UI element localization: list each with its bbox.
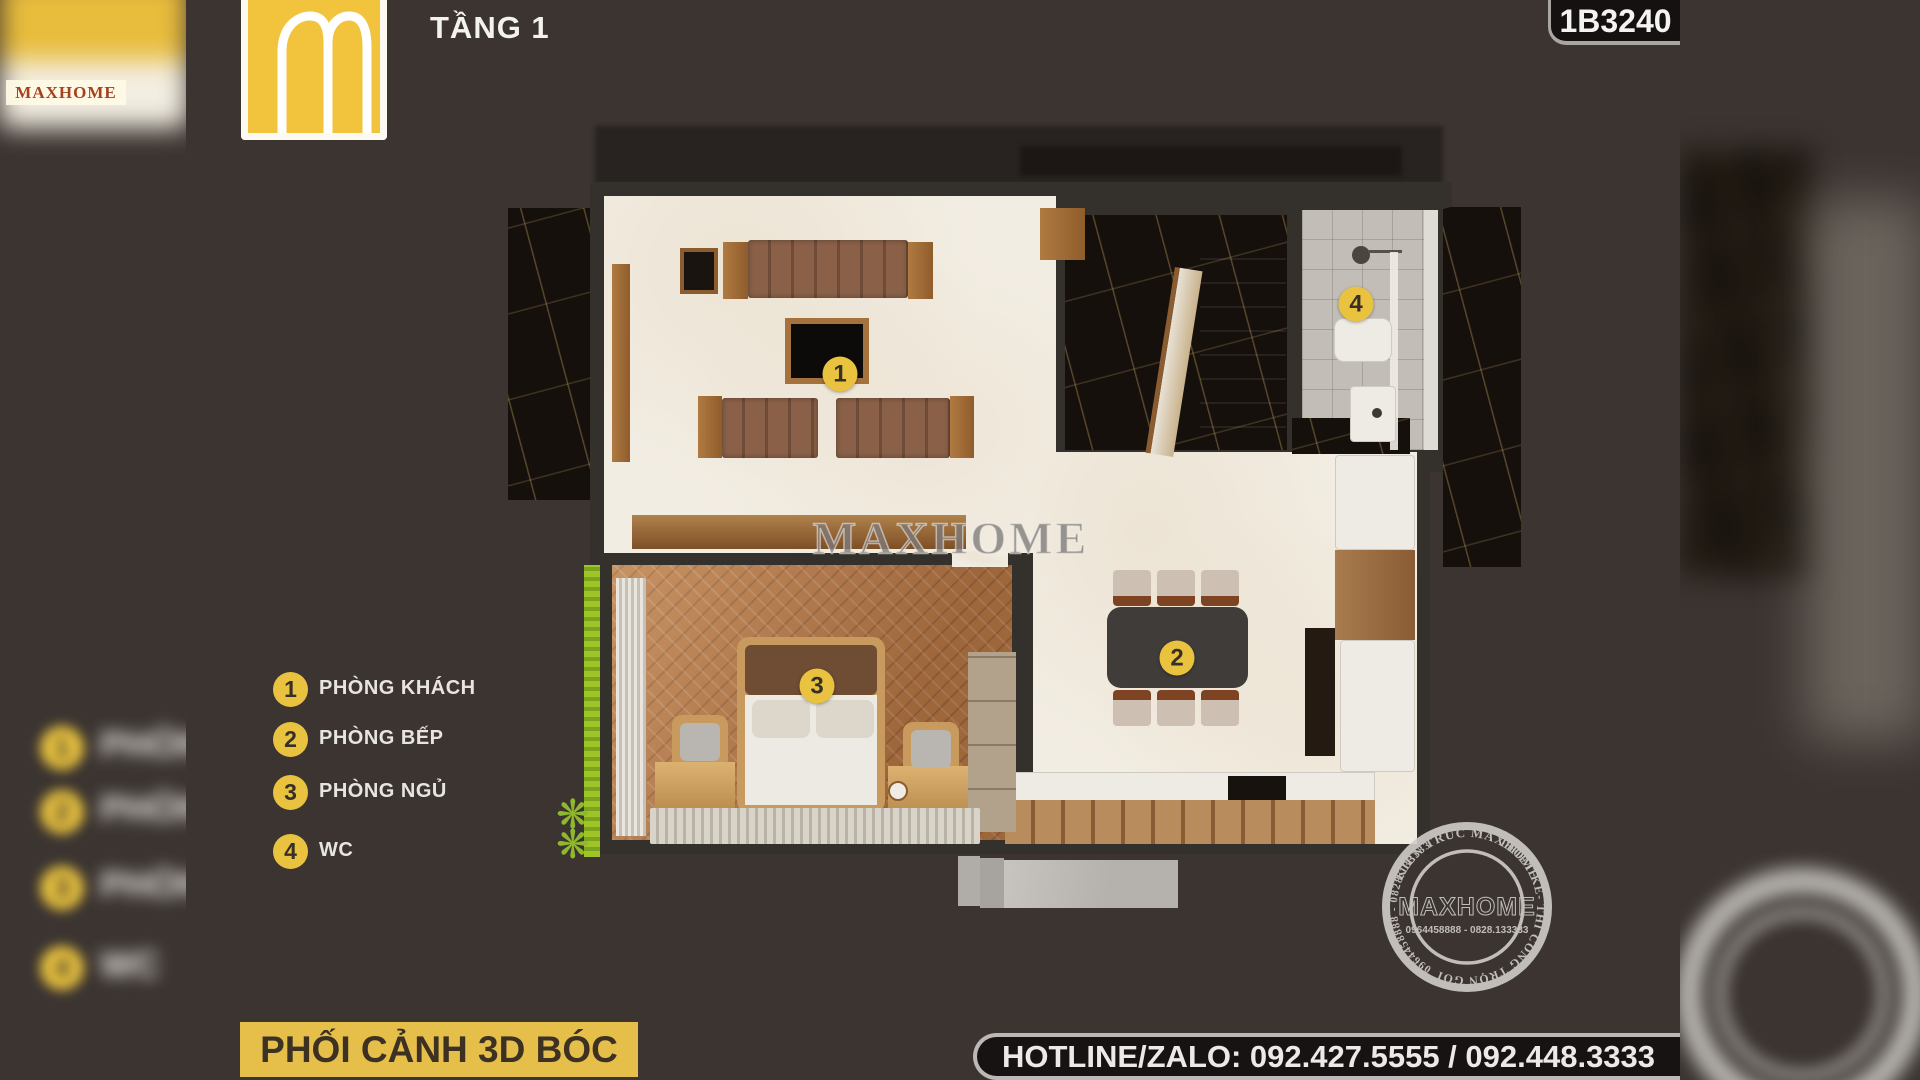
watermark: MAXHOME <box>813 512 1090 565</box>
ghost-legend-badge: 3 <box>40 866 84 910</box>
wc-right-wall <box>1424 210 1438 450</box>
ghost-legend-item-2: 2PHÒNG BẾP <box>40 790 190 836</box>
pillow <box>752 700 810 738</box>
dining-chair <box>1201 690 1239 726</box>
tall-cabinet <box>1305 628 1335 756</box>
legend-item-2: 2PHÒNG BẾP <box>273 722 523 758</box>
wall-clock-box <box>680 248 718 294</box>
ghost-legend: 1PHÒNG KHÁCH2PHÒNG BẾP3PHÒNG NGỦ4WC <box>0 0 190 1080</box>
dining-chair <box>1201 570 1239 606</box>
bedroom-rug <box>650 808 980 844</box>
table-clock-icon <box>888 781 908 801</box>
kitchen-base-cabinets <box>1005 800 1375 844</box>
maxhome-logo <box>241 0 387 140</box>
roof-cut-shadow-dark <box>1020 146 1402 176</box>
sofa-arm <box>950 396 974 458</box>
ghost-legend-label: PHÒNG NGỦ <box>100 864 190 906</box>
nightstand-left <box>655 762 735 812</box>
stool-seat <box>911 730 951 768</box>
dining-chair <box>1113 570 1151 606</box>
dining-chair <box>1157 690 1195 726</box>
room-marker-wc: 4 <box>1339 287 1374 322</box>
ghost-legend-item-3: 3PHÒNG NGỦ <box>40 866 190 912</box>
dining-chair <box>1157 570 1195 606</box>
sofa-bottom-left <box>722 398 818 458</box>
room-marker-phong-bep: 2 <box>1160 641 1195 676</box>
sofa-arm <box>908 242 933 299</box>
toilet-drain-icon <box>1372 408 1382 418</box>
kitchen-side-counter <box>1340 640 1415 772</box>
stair-cabinet <box>1040 208 1085 260</box>
ghost-marble-panel <box>1680 148 1812 578</box>
entry-door <box>612 264 630 462</box>
ghost-legend-badge: 1 <box>40 726 84 770</box>
logo-m-icon <box>248 0 387 140</box>
design-code-badge: 1B3240 <box>1548 0 1680 45</box>
legend-label: PHÒNG KHÁCH <box>319 677 476 700</box>
stair-steps <box>1200 250 1286 450</box>
logo-wordmark: MAXHOME <box>6 80 126 105</box>
kitchen-counter <box>1005 772 1375 802</box>
legend-item-4: 4WC <box>273 834 523 870</box>
legend-item-3: 3PHÒNG NGỦ <box>273 775 523 811</box>
legend-number-badge: 4 <box>273 834 308 869</box>
floor-title: TẦNG 1 <box>430 10 550 46</box>
stamp-center-phone: 0964458888 - 0828.133333 <box>1406 925 1529 936</box>
porch-step <box>980 858 1004 908</box>
sofa-arm <box>723 242 748 299</box>
room-marker-phong-ngu: 3 <box>800 669 835 704</box>
legend-item-1: 1PHÒNG KHÁCH <box>273 672 523 708</box>
legend-number-badge: 3 <box>273 775 308 810</box>
ghost-legend-label: PHÒNG BẾP <box>100 788 190 830</box>
room-marker-phong-khach: 1 <box>823 357 858 392</box>
cooktop <box>1228 776 1286 800</box>
grass-tuft-icon: ❋❋ <box>556 800 590 860</box>
ghost-highlight <box>1806 200 1920 740</box>
ghost-legend-label: PHÒNG KHÁCH <box>100 724 190 766</box>
ghost-legend-label: WC <box>100 944 160 986</box>
kitchen-wood-cabinet <box>1335 550 1415 640</box>
curtain <box>616 578 646 836</box>
ghost-legend-item-1: 1PHÒNG KHÁCH <box>40 726 190 772</box>
stool-seat <box>680 723 720 761</box>
hotline-banner: HOTLINE/ZALO: 092.427.5555 / 092.448.333… <box>973 1033 1680 1080</box>
ghost-legend-badge: 2 <box>40 790 84 834</box>
ghost-legend-item-4: 4WC <box>40 946 190 992</box>
poster: 1PHÒNG KHÁCH2PHÒNG BẾP3PHÒNG NGỦ4WC MAXH… <box>0 0 1920 1080</box>
caption-banner: PHỐI CẢNH 3D BÓC MÁI <box>240 1022 638 1077</box>
porch-slab <box>1004 860 1178 908</box>
maxhome-stamp: KIẾN TRÚC MAXHOME THIẾT KẾ- THI CÔNG TRỌ… <box>1381 821 1553 993</box>
bathtub <box>1334 318 1392 362</box>
porch-step <box>958 856 980 906</box>
legend-label: PHÒNG NGỦ <box>319 780 447 803</box>
marble-panel-right <box>1443 207 1521 567</box>
legend-label: WC <box>319 839 353 862</box>
dining-chair <box>1113 690 1151 726</box>
sofa-bottom-right <box>836 398 950 458</box>
ghost-legend-badge: 4 <box>40 946 84 990</box>
ghost-stamp-inner-ring <box>1716 908 1888 1080</box>
sofa-top <box>748 240 908 298</box>
stamp-center-name: MAXHOME <box>1398 893 1536 921</box>
kitchen-upper-cabinet <box>1335 455 1415 550</box>
pillow <box>816 700 874 738</box>
marble-panel-left <box>508 208 590 500</box>
shower-icon <box>1352 246 1370 264</box>
legend-number-badge: 1 <box>273 672 308 707</box>
legend-label: PHÒNG BẾP <box>319 727 444 750</box>
wardrobe <box>968 652 1016 832</box>
legend-number-badge: 2 <box>273 722 308 757</box>
sofa-arm <box>698 396 722 458</box>
